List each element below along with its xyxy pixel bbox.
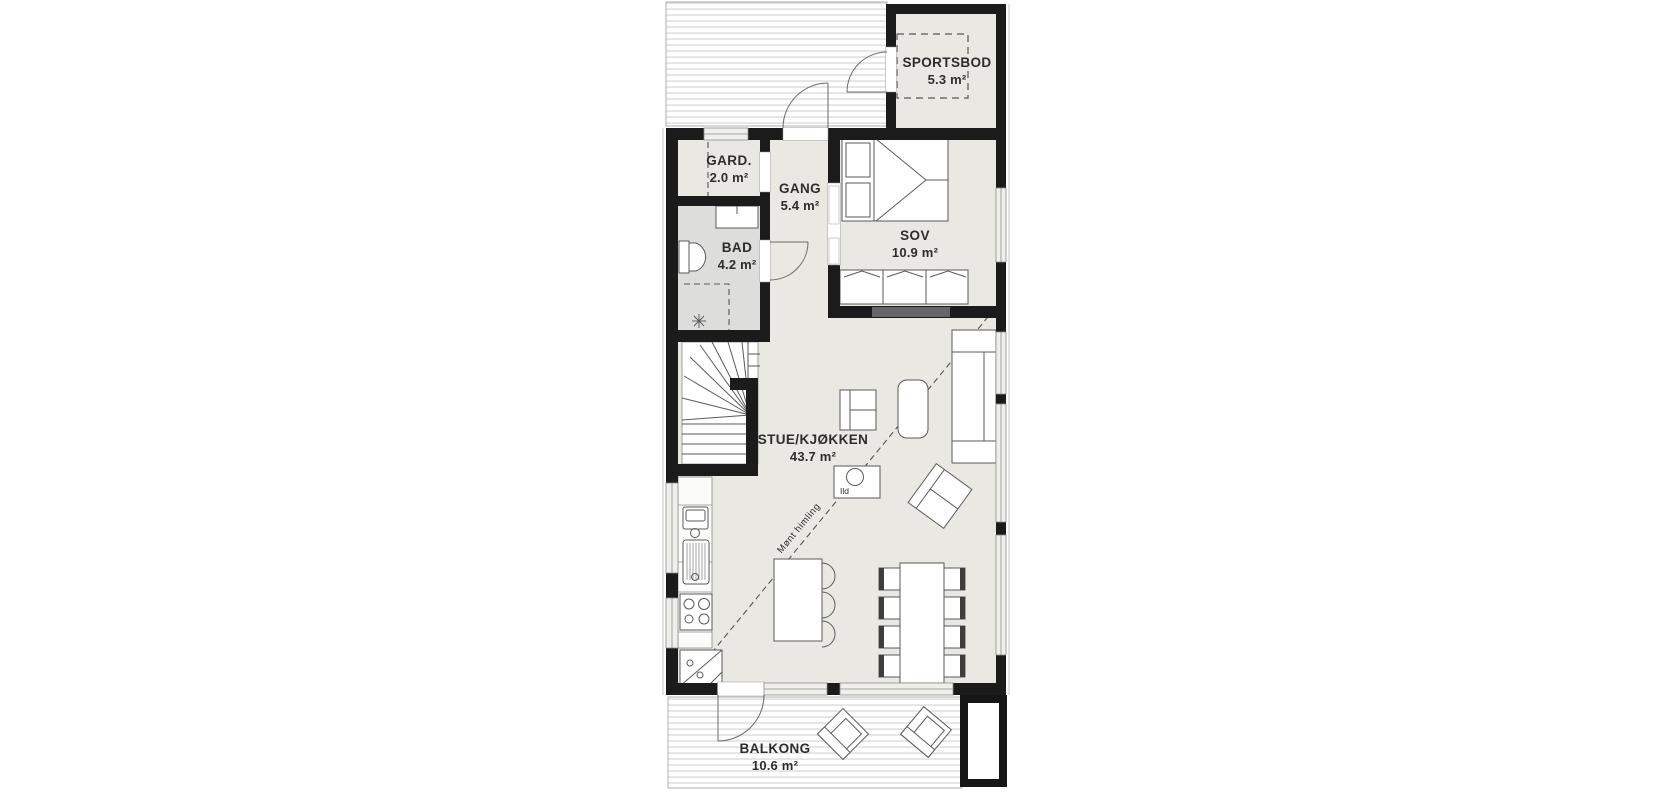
window	[996, 535, 1006, 655]
double-bed	[842, 139, 948, 221]
window	[840, 683, 953, 695]
room-area-stue: 43.7 m²	[790, 449, 837, 464]
dish-rack	[683, 540, 709, 584]
room-label-balkong: BALKONG	[739, 741, 810, 756]
floorplan-drawing: Ild	[600, 0, 1020, 800]
glass-partition	[872, 307, 950, 317]
dining-table	[900, 563, 944, 683]
room-label-stue: STUE/KJØKKEN	[758, 432, 869, 447]
corner-cabinet	[680, 650, 722, 686]
dining-chair	[879, 626, 900, 648]
room-label-sportsbod: SPORTSBOD	[902, 55, 991, 70]
dining-chair	[944, 597, 965, 619]
wardrobe	[840, 270, 968, 304]
fireplace: Ild	[834, 466, 880, 498]
fireplace-label: Ild	[840, 486, 849, 496]
room-label-sov: SOV	[900, 228, 930, 243]
pillow	[846, 183, 870, 217]
window	[764, 683, 827, 695]
bathroom-vanity	[716, 206, 758, 228]
dining-chair	[879, 655, 900, 677]
room-area-gang: 5.4 m²	[781, 198, 820, 213]
roof-terrace-deck	[666, 2, 887, 126]
room-area-bad: 4.2 m²	[718, 257, 757, 272]
window	[704, 128, 748, 140]
dining-chair	[879, 597, 900, 619]
room-area-sportsbod: 5.3 m²	[928, 72, 967, 87]
chaise-lounge	[898, 380, 928, 438]
room-area-sov: 10.9 m²	[892, 245, 939, 260]
room-area-gard: 2.0 m²	[710, 170, 749, 185]
floorplan-page: Ild	[0, 0, 1670, 800]
window	[996, 404, 1006, 522]
cooktop	[680, 594, 712, 630]
room-label-bad: BAD	[722, 240, 752, 255]
window	[666, 483, 678, 573]
window	[666, 598, 678, 648]
sofa	[952, 330, 996, 463]
room-label-gang: GANG	[779, 181, 821, 196]
pillow	[846, 143, 870, 177]
window	[996, 188, 1006, 262]
dining-chair	[944, 655, 965, 677]
dining-chair	[944, 568, 965, 590]
armchair	[840, 390, 876, 430]
window	[996, 332, 1006, 394]
drain-icon	[692, 314, 706, 328]
dining-chair	[944, 626, 965, 648]
room-area-balkong: 10.6 m²	[752, 758, 799, 773]
sportsbod-floor	[896, 14, 996, 128]
room-label-gard: GARD.	[706, 153, 752, 168]
dining-chair	[879, 568, 900, 590]
balcony-storage-box	[964, 699, 1003, 783]
